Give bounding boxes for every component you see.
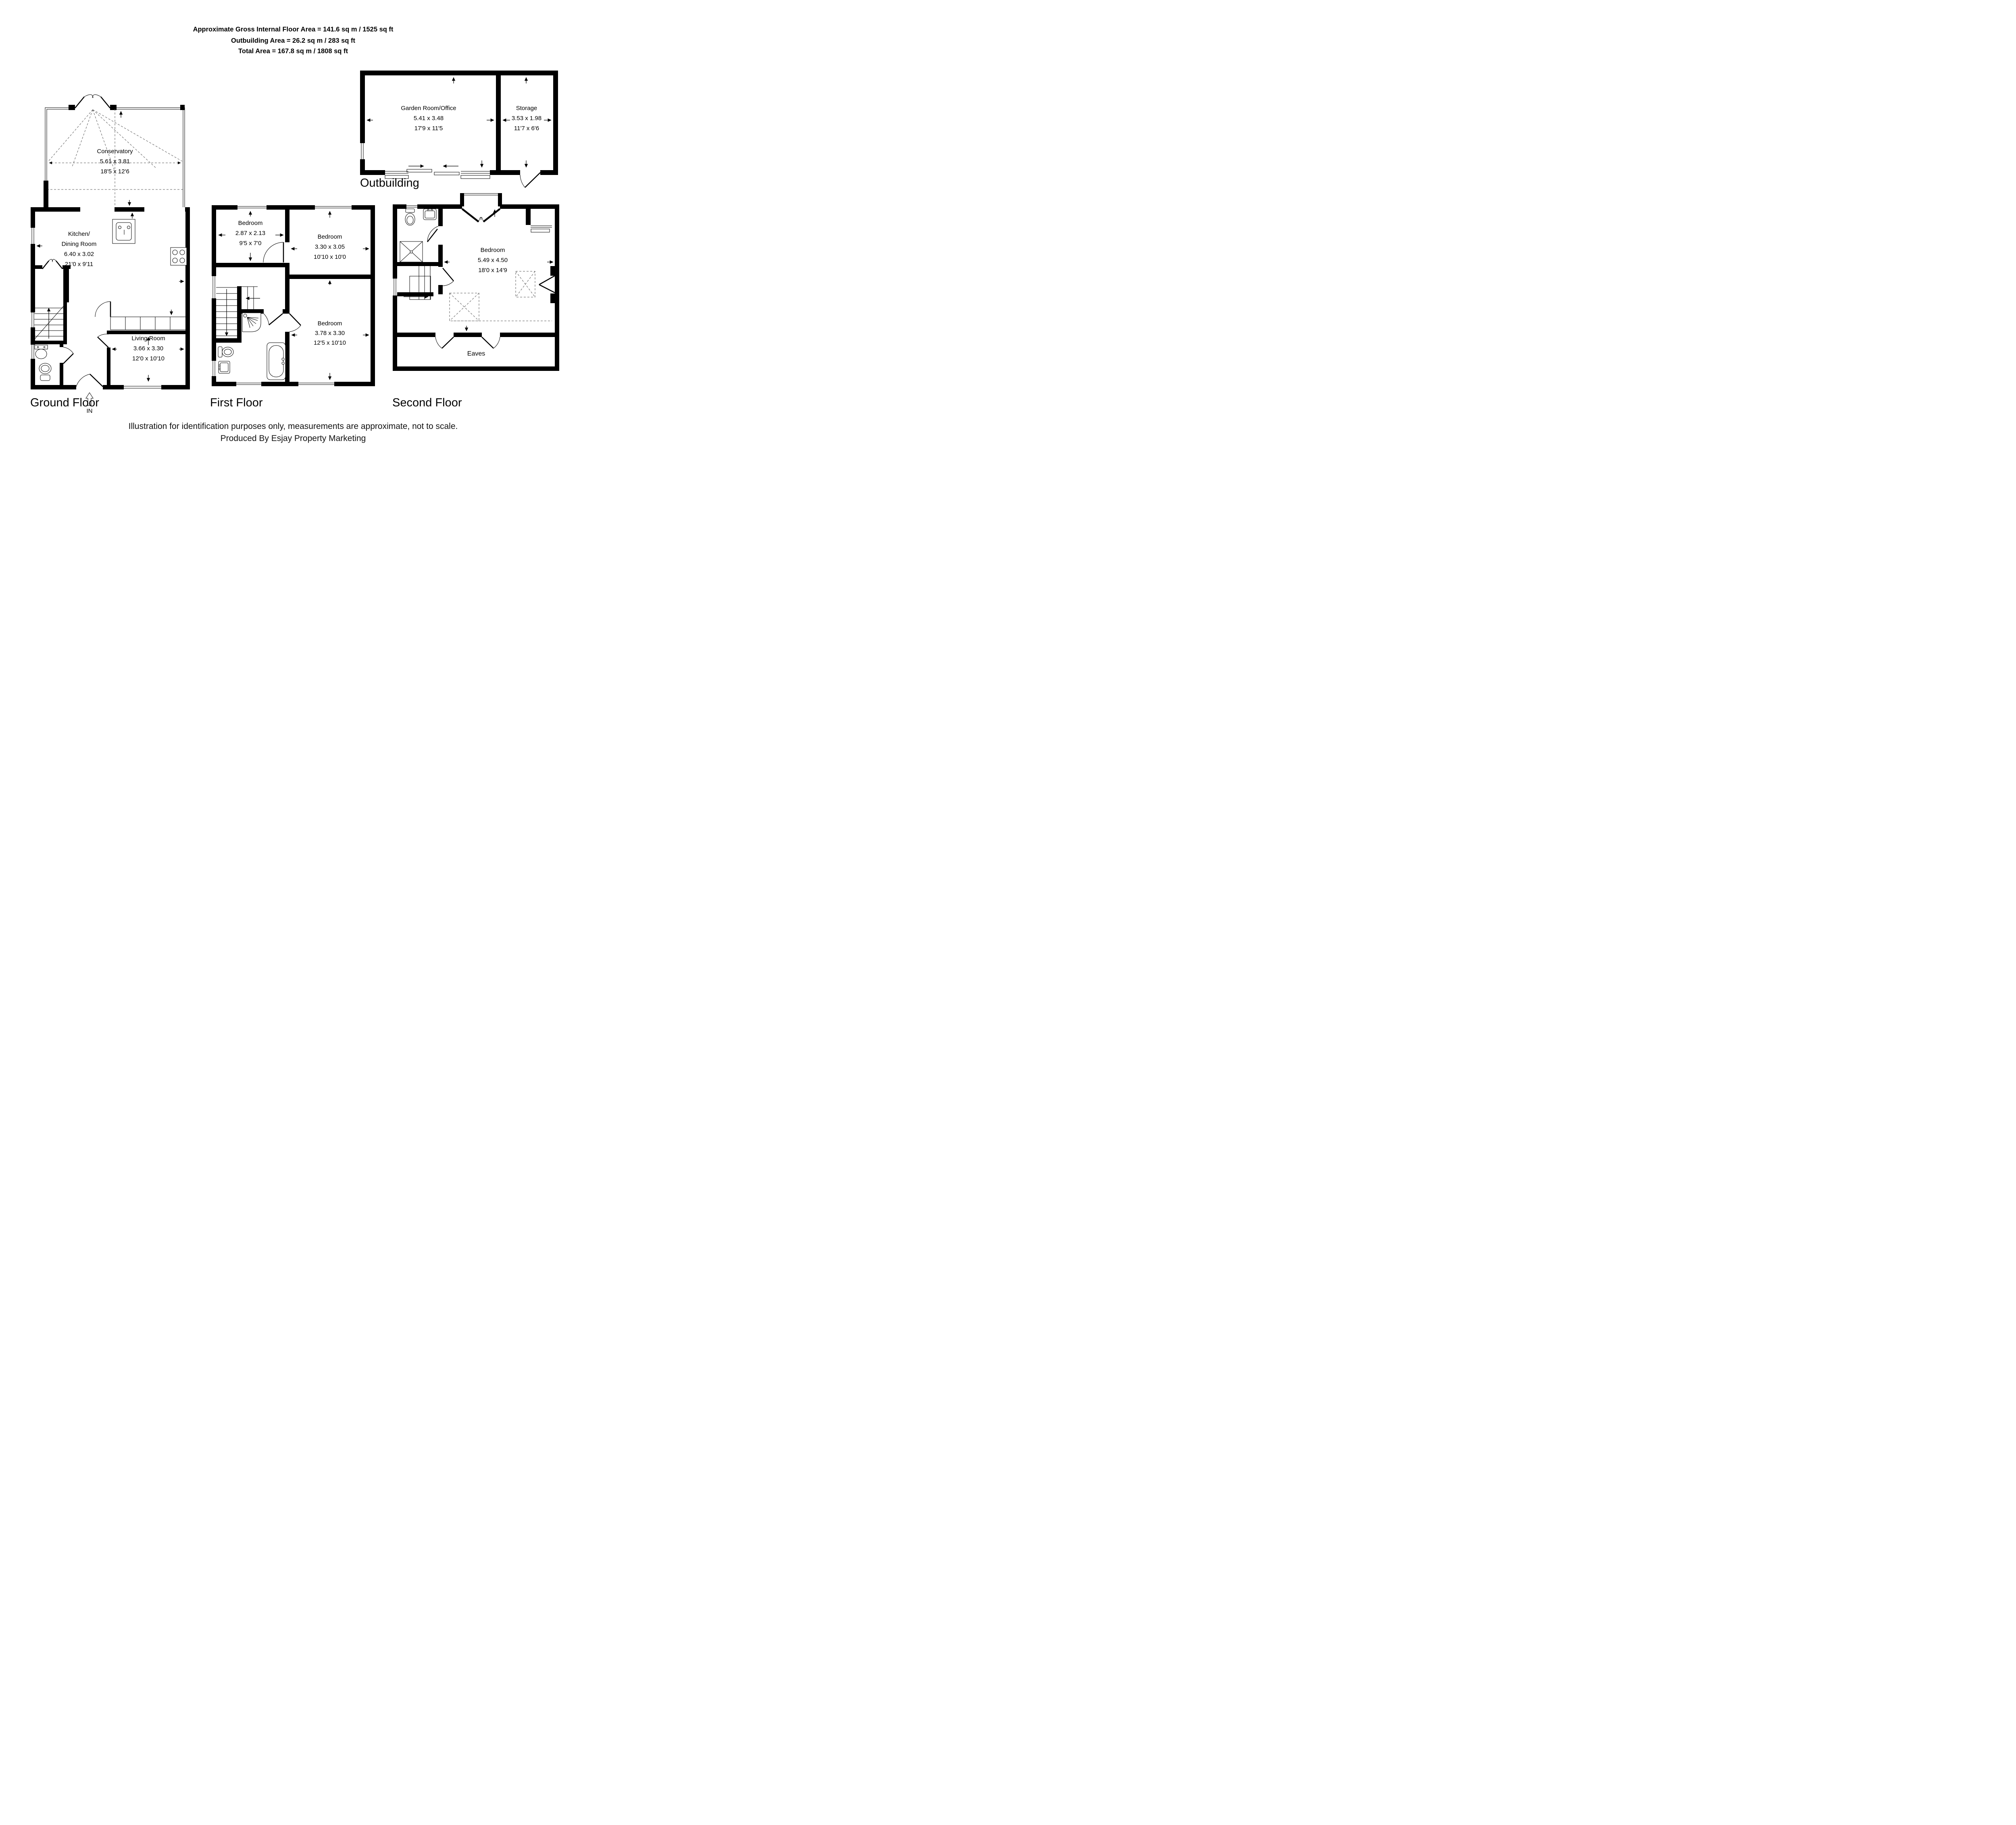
bedroom-rear: Bedroom 3.78 x 3.30 12'5 x 10'10 xyxy=(292,281,369,380)
rear-bedroom-door-leaf[interactable] xyxy=(289,314,301,325)
eaves-dashed-outlines xyxy=(450,271,552,321)
landing-door-leaf[interactable] xyxy=(443,268,454,281)
sliding-doors[interactable] xyxy=(407,166,459,175)
outbuilding-title: Outbuilding xyxy=(360,177,419,189)
bedroom-name: Bedroom xyxy=(318,233,342,240)
bedroom-imperial: 9'5 x 7'0 xyxy=(240,240,262,247)
bedroom-metric: 5.49 x 4.50 xyxy=(478,257,508,264)
window-shelf xyxy=(531,229,550,232)
hob-fixture xyxy=(171,248,187,265)
dormer-window xyxy=(462,194,500,222)
bathtub-fixture xyxy=(267,343,285,380)
bedroom-middle: Bedroom 3.30 x 3.05 10'10 x 10'0 xyxy=(291,211,369,260)
garden-room-imperial: 17'9 x 11'5 xyxy=(414,125,443,132)
storage-imperial: 11'7 x 6'6 xyxy=(514,125,539,132)
first-floor-title: First Floor xyxy=(210,396,263,409)
kitchen-door-swing xyxy=(95,302,110,317)
shower-fixture xyxy=(242,313,261,332)
conservatory-imperial: 18'5 x 12'6 xyxy=(100,168,129,175)
toilet-fixture xyxy=(405,209,415,225)
floorplan-page: Approximate Gross Internal Floor Area = … xyxy=(0,0,586,456)
front-door-leaf[interactable] xyxy=(90,374,103,387)
landing-door-swing xyxy=(443,281,454,286)
bedroom-metric: 3.30 x 3.05 xyxy=(315,243,345,250)
wc-door-leaf[interactable] xyxy=(63,354,73,364)
wc-room xyxy=(35,345,73,381)
rear-lobby xyxy=(42,259,62,269)
first-floor-plan: Bedroom 2.87 x 2.13 9'5 x 7'0 Bedroom 3.… xyxy=(208,200,381,425)
garden-room-name: Garden Room/Office xyxy=(401,105,456,112)
bedroom-name: Bedroom xyxy=(238,220,263,227)
bedroom-imperial: 10'10 x 10'0 xyxy=(314,254,346,260)
disclaimer-text: Illustration for identification purposes… xyxy=(0,422,586,431)
kitchen-name-line2: Dining Room xyxy=(62,241,97,248)
total-area-text: Total Area = 167.8 sq m / 1808 sq ft xyxy=(0,48,586,55)
outbuilding-walls xyxy=(360,71,558,175)
bedroom-name: Bedroom xyxy=(318,320,342,327)
lobby-door-leaf[interactable] xyxy=(56,261,62,269)
conservatory-room: Conservatory 5.61 x 3.81 18'5 x 12'6 xyxy=(45,95,185,207)
ground-floor-windows xyxy=(31,228,161,389)
conservatory-metric: 5.61 x 3.81 xyxy=(100,158,130,165)
total-floor-area-text: Approximate Gross Internal Floor Area = … xyxy=(0,26,586,33)
ground-floor-plan: Conservatory 5.61 x 3.81 18'5 x 12'6 xyxy=(24,93,198,415)
bedroom-door-swing xyxy=(263,242,283,262)
front-door-swing xyxy=(76,374,90,387)
storage-name: Storage xyxy=(516,105,537,112)
bedroom-imperial: 12'5 x 10'10 xyxy=(314,339,346,346)
basin-fixture xyxy=(423,209,436,220)
kitchen-name-line1: Kitchen/ xyxy=(68,231,90,237)
kitchen-imperial: 21'0 x 9'11 xyxy=(65,261,94,268)
conservatory-name: Conservatory xyxy=(97,148,133,155)
conservatory-door-gap xyxy=(74,104,111,110)
bedroom-front: Bedroom 2.87 x 2.13 9'5 x 7'0 xyxy=(219,211,283,261)
outbuilding-area-text: Outbuilding Area = 26.2 sq m / 283 sq ft xyxy=(0,37,586,45)
living-room-name: Living Room xyxy=(131,335,165,342)
staircase[interactable] xyxy=(34,306,63,339)
bedroom-main: Bedroom 5.49 x 4.50 18'0 x 14'9 xyxy=(444,247,553,331)
living-room: Living Room 3.66 x 3.30 12'0 x 10'10 xyxy=(98,334,184,381)
kitchen-metric: 6.40 x 3.02 xyxy=(64,251,94,258)
living-room-door-swing xyxy=(98,334,108,337)
bathroom-door-swing xyxy=(264,314,269,325)
basin-fixture xyxy=(219,361,230,373)
living-room-imperial: 12'0 x 10'10 xyxy=(132,355,165,362)
garden-room-metric: 5.41 x 3.48 xyxy=(414,115,444,122)
living-room-metric: 3.66 x 3.30 xyxy=(133,345,163,352)
second-floor-plan: Bedroom 5.49 x 4.50 18'0 x 14'9 Eaves Se… xyxy=(389,189,566,415)
kitchen-sink-fixture xyxy=(112,219,135,243)
ensuite xyxy=(400,209,438,262)
eaves-label: Eaves xyxy=(467,350,485,357)
toilet-fixture xyxy=(218,347,233,357)
wardrobe-doors[interactable] xyxy=(539,276,555,293)
wc-door-swing xyxy=(63,347,73,354)
bathroom-door-leaf[interactable] xyxy=(269,314,283,325)
garden-room: Garden Room/Office 5.41 x 3.48 17'9 x 11… xyxy=(367,77,494,167)
storage-door[interactable] xyxy=(520,173,540,187)
second-floor-title: Second Floor xyxy=(392,396,462,409)
outbuilding-plan: Garden Room/Office 5.41 x 3.48 17'9 x 11… xyxy=(357,67,566,191)
storage-metric: 3.53 x 1.98 xyxy=(512,115,541,122)
lobby-door-leaf[interactable] xyxy=(42,261,49,269)
bedroom-metric: 3.78 x 3.30 xyxy=(315,330,345,337)
ground-floor-walls xyxy=(31,181,190,389)
bedroom-imperial: 18'0 x 14'9 xyxy=(478,267,507,274)
wc-basin-fixture xyxy=(35,345,48,359)
living-room-door-leaf[interactable] xyxy=(98,337,108,348)
bedroom-name: Bedroom xyxy=(481,247,505,254)
rear-bedroom-door-swing xyxy=(289,325,301,332)
toilet-fixture xyxy=(39,363,51,381)
eaves-access-doors[interactable] xyxy=(435,337,500,348)
producer-text: Produced By Esjay Property Marketing xyxy=(0,434,586,443)
ground-floor-title: Ground Floor xyxy=(30,396,99,409)
kitchen-counter xyxy=(110,317,186,330)
storage-room: Storage 3.53 x 1.98 11'7 x 6'6 xyxy=(503,77,551,167)
bedroom-metric: 2.87 x 2.13 xyxy=(235,230,265,237)
bathroom xyxy=(218,313,285,380)
shower-tray-fixture xyxy=(400,241,423,262)
